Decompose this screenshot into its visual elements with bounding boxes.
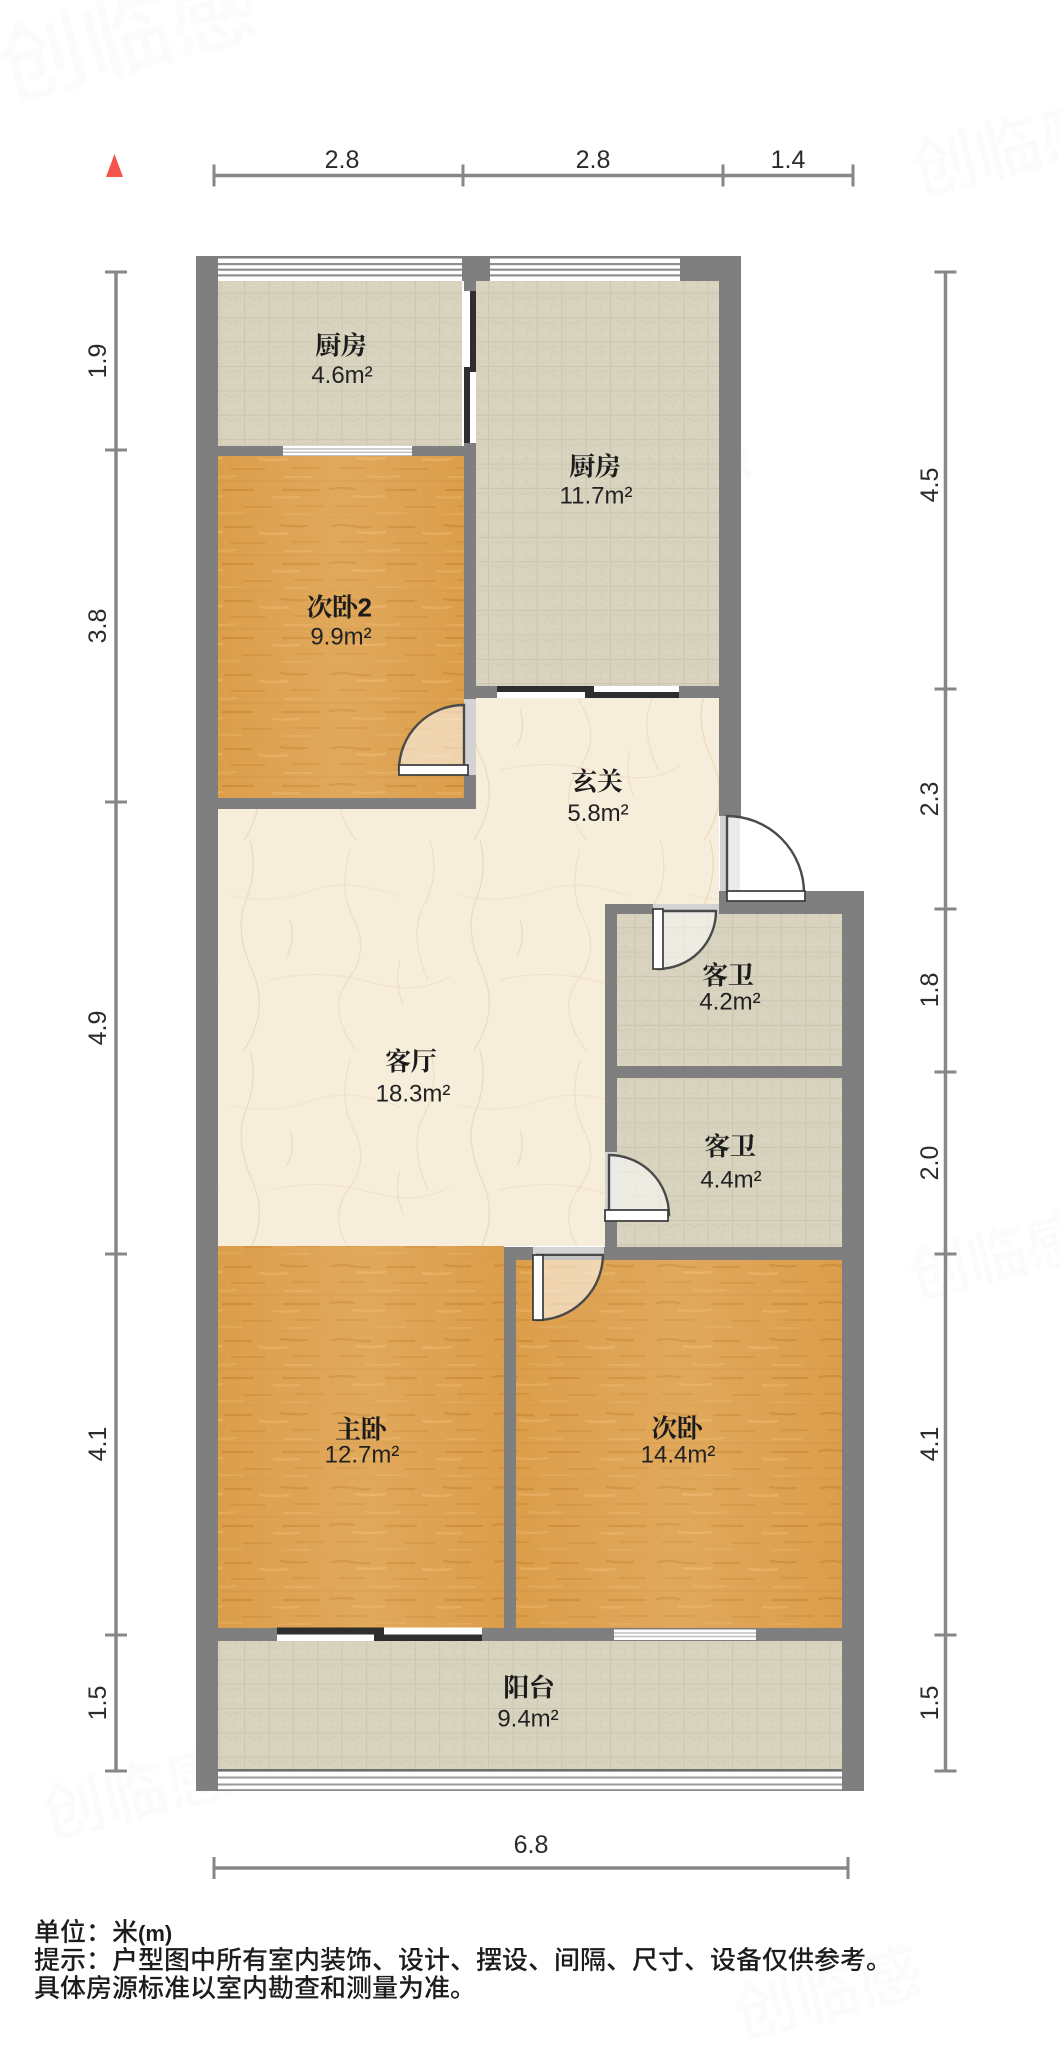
svg-text:4.1: 4.1 — [84, 1427, 112, 1462]
svg-text:9.9m²: 9.9m² — [310, 624, 371, 651]
svg-text:(m): (m) — [138, 1921, 172, 1946]
svg-text:4.1: 4.1 — [916, 1427, 944, 1462]
svg-text:4.9: 4.9 — [84, 1011, 112, 1046]
svg-text:11.7m²: 11.7m² — [560, 483, 633, 510]
svg-text:4.2m²: 4.2m² — [699, 989, 760, 1016]
svg-text:3.8: 3.8 — [84, 609, 112, 644]
svg-text:2.8: 2.8 — [325, 146, 360, 174]
svg-text:4.6m²: 4.6m² — [311, 362, 372, 389]
svg-text:2.8: 2.8 — [576, 146, 611, 174]
svg-text:6.8: 6.8 — [514, 1831, 549, 1859]
svg-text:2.0: 2.0 — [916, 1146, 944, 1181]
svg-text:9.4m²: 9.4m² — [497, 1706, 558, 1733]
svg-text:2: 2 — [358, 592, 372, 622]
svg-text:1.4: 1.4 — [771, 146, 806, 174]
svg-text:18.3m²: 18.3m² — [376, 1081, 451, 1108]
svg-text:1.5: 1.5 — [916, 1686, 944, 1721]
svg-text:1.5: 1.5 — [84, 1686, 112, 1721]
svg-text:4.5: 4.5 — [916, 468, 944, 503]
svg-text:1.8: 1.8 — [916, 973, 944, 1008]
svg-text:1.9: 1.9 — [84, 344, 112, 379]
svg-text:4.4m²: 4.4m² — [700, 1167, 761, 1194]
svg-text:5.8m²: 5.8m² — [567, 800, 628, 827]
svg-text:14.4m²: 14.4m² — [641, 1442, 716, 1469]
svg-text:12.7m²: 12.7m² — [325, 1442, 400, 1469]
svg-text:2.3: 2.3 — [916, 782, 944, 817]
